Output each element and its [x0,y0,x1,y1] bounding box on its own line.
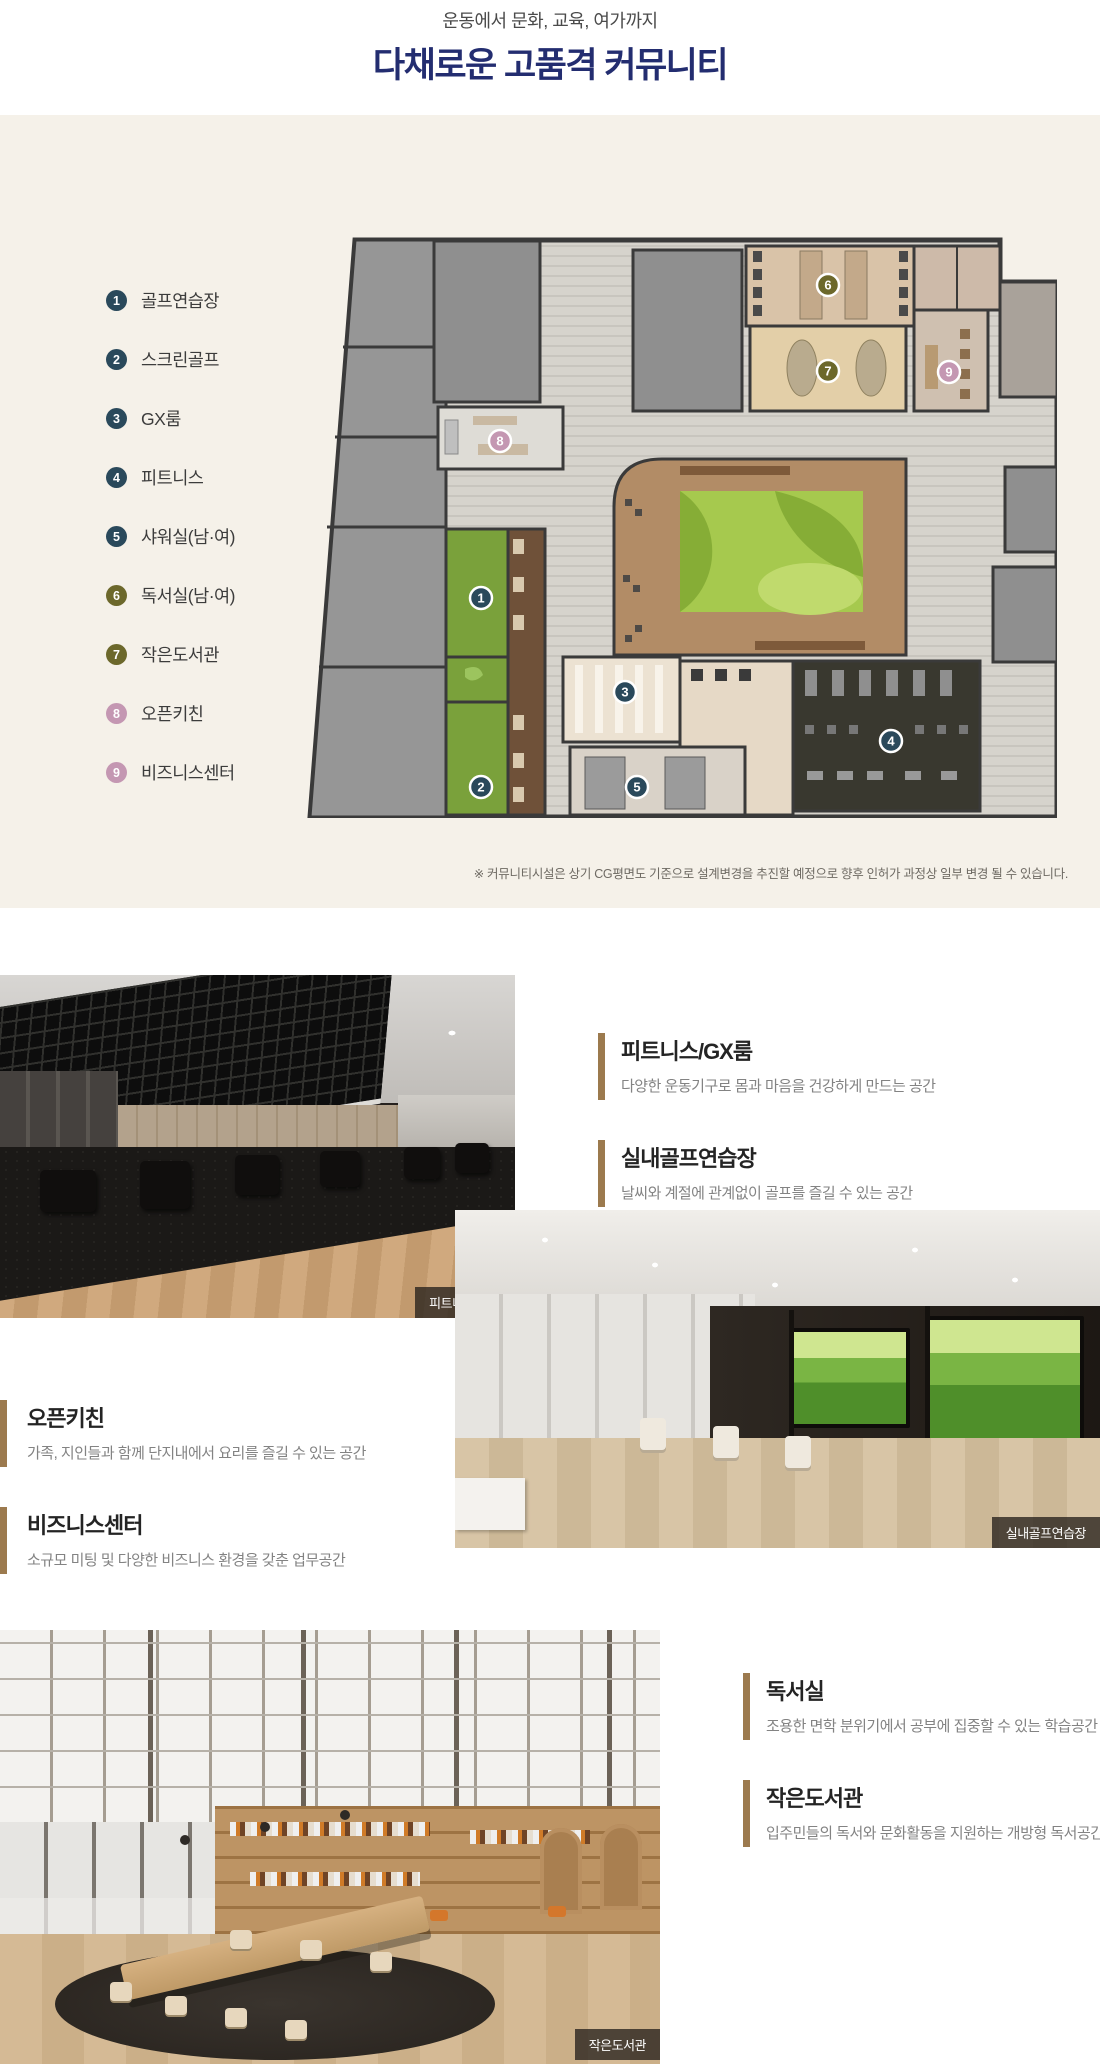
plan-marker-5: 5 [626,776,648,798]
gym-equipment [404,1147,440,1179]
photo-caption: 작은도서관 [575,2029,660,2060]
library-chair [165,1996,187,2015]
golf-screen [926,1316,1084,1442]
feature-desc: 가족, 지인들과 함께 단지내에서 요리를 즐길 수 있는 공간 [27,1442,366,1463]
floor-plan-section: 1 골프연습장 2 스크린골프 3 GX룸 4 피트니스 5 샤워실(남·여) … [0,115,1100,908]
svg-text:7: 7 [824,364,831,379]
small-library-photo: 작은도서관 [0,1630,660,2064]
plan-marker-2: 2 [470,776,492,798]
plan-marker-1: 1 [470,587,492,609]
plan-marker-9: 9 [938,361,960,383]
page-header: 운동에서 문화, 교육, 여가까지 다채로운 고품격 커뮤니티 [0,0,1100,115]
golf-counter [455,1478,525,1530]
legend-label: 작은도서관 [141,642,219,667]
legend-item-screen-golf: 2 스크린골프 [106,347,235,372]
library-chair [370,1952,392,1971]
feature-open-kitchen: 오픈키친 가족, 지인들과 함께 단지내에서 요리를 즐길 수 있는 공간 [0,1400,366,1467]
feature-title: 실내골프연습장 [621,1141,936,1173]
golf-chair [785,1436,811,1468]
feature-desc: 다양한 운동기구로 몸과 마음을 건강하게 만드는 공간 [621,1075,936,1096]
feature-title: 작은도서관 [766,1781,1100,1813]
plan-marker-4: 4 [880,730,902,752]
legend-item-small-library: 7 작은도서관 [106,642,235,667]
plan-golf-range [446,529,545,815]
feature-title: 비즈니스센터 [27,1508,366,1540]
legend-number-badge: 9 [106,762,127,783]
library-chair [225,2008,247,2027]
gym-equipment [455,1143,489,1173]
legend-number-badge: 5 [106,526,127,547]
feature-small-library: 작은도서관 입주민들의 독서와 문화활동을 지원하는 개방형 독서공간 [743,1780,1100,1847]
library-pendant-light [180,1835,190,1845]
feature-desc: 입주민들의 독서와 문화활동을 지원하는 개방형 독서공간 [766,1822,1100,1843]
library-chair [110,1982,132,2001]
gym-locker-wall [118,1105,398,1149]
svg-text:1: 1 [477,591,484,606]
legend-number-badge: 2 [106,349,127,370]
library-arch-niche [600,1824,642,1910]
feature-title: 오픈키친 [27,1401,366,1433]
feature-reading-room: 독서실 조용한 면학 분위기에서 공부에 집중할 수 있는 학습공간 [743,1673,1100,1740]
indoor-golf-photo: 실내골프연습장 [455,1210,1100,1548]
golf-chair [640,1418,666,1450]
legend-label: 스크린골프 [141,347,219,372]
legend-label: 피트니스 [141,465,203,490]
library-pendant-light [340,1810,350,1820]
gym-equipment [235,1155,279,1195]
legend-item-business-center: 9 비즈니스센터 [106,760,235,785]
feature-desc: 날씨와 계절에 관계없이 골프를 즐길 수 있는 공간 [621,1182,936,1203]
feature-desc: 조용한 면학 분위기에서 공부에 집중할 수 있는 학습공간 [766,1715,1100,1736]
page-title: 다채로운 고품격 커뮤니티 [0,37,1100,88]
plan-marker-7: 7 [817,360,839,382]
plan-disclaimer: ※ 커뮤니티시설은 상기 CG평면도 기준으로 설계변경을 추진할 예정으로 향… [0,863,1068,882]
golf-chair [713,1426,739,1458]
legend-item-fitness: 4 피트니스 [106,465,235,490]
photo-caption: 실내골프연습장 [992,1517,1100,1548]
floor-plan: 1 2 3 4 5 6 7 8 9 [305,237,1057,818]
plan-legend: 1 골프연습장 2 스크린골프 3 GX룸 4 피트니스 5 샤워실(남·여) … [106,288,235,785]
svg-text:3: 3 [621,685,628,700]
library-chair [300,1940,322,1959]
library-cushion [548,1906,566,1917]
legend-number-badge: 4 [106,467,127,488]
feature-indoor-golf: 실내골프연습장 날씨와 계절에 관계없이 골프를 즐길 수 있는 공간 [598,1140,936,1207]
community-page: 운동에서 문화, 교육, 여가까지 다채로운 고품격 커뮤니티 1 골프연습장 … [0,0,1100,2064]
gym-equipment [140,1161,190,1209]
library-arch-niche [540,1828,582,1914]
feature-title: 독서실 [766,1674,1100,1706]
legend-item-reading-room: 6 독서실(남·여) [106,583,235,608]
legend-number-badge: 7 [106,644,127,665]
svg-text:5: 5 [633,780,640,795]
library-pendant-light [260,1822,270,1832]
feature-group-kitchen-business: 오픈키친 가족, 지인들과 함께 단지내에서 요리를 즐길 수 있는 공간 비즈… [0,1400,366,1614]
svg-text:9: 9 [945,365,952,380]
header-subtitle: 운동에서 문화, 교육, 여가까지 [0,0,1100,33]
feature-title: 피트니스/GX룸 [621,1034,936,1066]
legend-item-shower: 5 샤워실(남·여) [106,524,235,549]
feature-business-center: 비즈니스센터 소규모 미팅 및 다양한 비즈니스 환경을 갖춘 업무공간 [0,1507,366,1574]
fitness-center-photo: 피트니스 센터 [0,975,515,1318]
plan-shower-room [570,747,745,815]
plan-marker-3: 3 [614,681,636,703]
legend-label: 비즈니스센터 [141,760,235,785]
plan-toilets [914,246,1000,310]
legend-number-badge: 8 [106,703,127,724]
legend-number-badge: 6 [106,585,127,606]
feature-fitness-gx: 피트니스/GX룸 다양한 운동기구로 몸과 마음을 건강하게 만드는 공간 [598,1033,936,1100]
library-books [250,1872,420,1886]
gym-equipment [320,1151,360,1187]
svg-text:6: 6 [824,278,831,293]
svg-text:8: 8 [496,434,503,449]
library-chair [230,1930,252,1949]
legend-label: 오픈키친 [141,701,203,726]
svg-text:2: 2 [477,780,484,795]
feature-group-reading-library: 독서실 조용한 면학 분위기에서 공부에 집중할 수 있는 학습공간 작은도서관… [743,1673,1100,1887]
legend-item-gx-room: 3 GX룸 [106,406,235,431]
library-chair [285,2020,307,2039]
gym-equipment [40,1170,96,1212]
legend-label: GX룸 [141,406,181,431]
legend-label: 골프연습장 [141,288,219,313]
legend-number-badge: 3 [106,408,127,429]
legend-item-open-kitchen: 8 오픈키친 [106,701,235,726]
plan-courtyard [614,459,906,655]
svg-text:4: 4 [887,734,895,749]
library-cushion [430,1910,448,1921]
legend-item-golf-range: 1 골프연습장 [106,288,235,313]
legend-number-badge: 1 [106,290,127,311]
legend-label: 샤워실(남·여) [141,524,235,549]
golf-screen [790,1328,910,1428]
library-ceiling [0,1630,660,1822]
feature-desc: 소규모 미팅 및 다양한 비즈니스 환경을 갖춘 업무공간 [27,1549,366,1570]
plan-marker-8: 8 [489,430,511,452]
legend-label: 독서실(남·여) [141,583,235,608]
plan-marker-6: 6 [817,274,839,296]
